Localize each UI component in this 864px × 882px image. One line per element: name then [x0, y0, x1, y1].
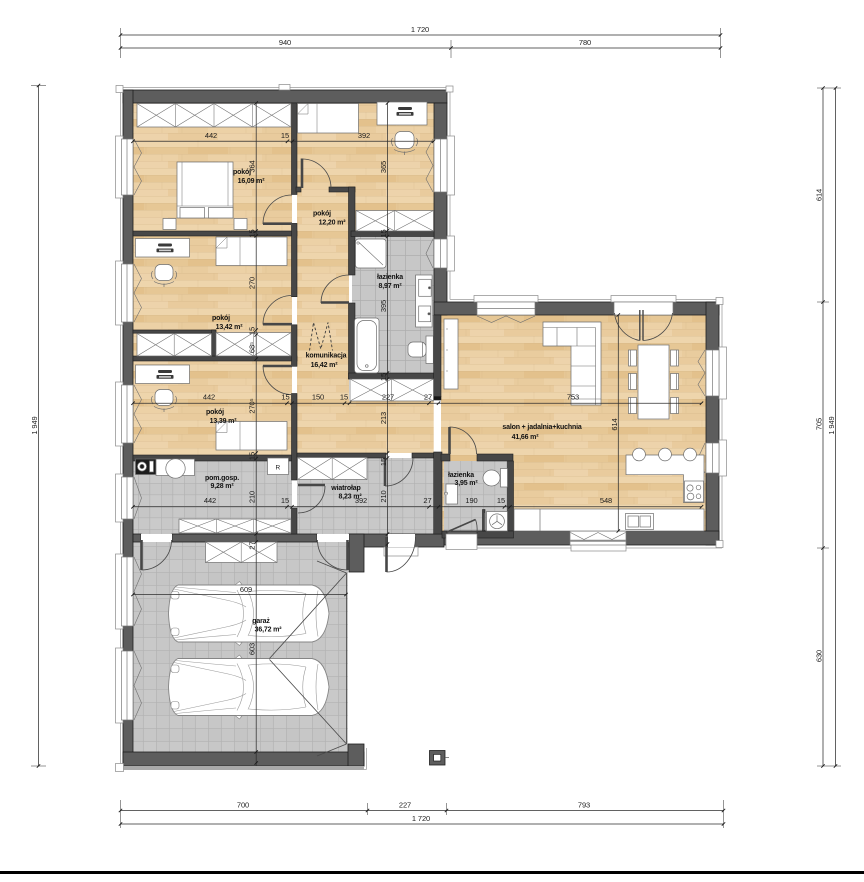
svg-text:27: 27	[248, 541, 257, 549]
svg-text:27: 27	[423, 496, 431, 505]
svg-text:213: 213	[379, 412, 388, 424]
svg-text:15: 15	[379, 373, 388, 381]
svg-text:garaż: garaż	[252, 618, 270, 625]
svg-text:41,66 m²: 41,66 m²	[512, 434, 540, 441]
svg-text:pokój: pokój	[233, 169, 251, 176]
svg-text:pokój: pokój	[313, 211, 331, 218]
svg-text:3,95 m²: 3,95 m²	[454, 480, 478, 487]
svg-text:442: 442	[203, 393, 215, 402]
svg-text:609: 609	[240, 585, 252, 594]
svg-text:15: 15	[281, 131, 289, 140]
svg-text:1 720: 1 720	[412, 814, 430, 823]
svg-text:9,28 m²: 9,28 m²	[210, 483, 234, 490]
svg-text:15: 15	[379, 229, 388, 237]
svg-text:13,42 m²: 13,42 m²	[216, 324, 244, 331]
svg-text:365: 365	[379, 161, 388, 173]
svg-text:1 949: 1 949	[30, 416, 39, 434]
svg-text:270: 270	[248, 277, 257, 289]
svg-text:227: 227	[382, 393, 394, 402]
svg-text:komunikacja: komunikacja	[306, 353, 347, 360]
svg-text:łazienka: łazienka	[377, 274, 403, 281]
svg-text:614: 614	[610, 418, 619, 430]
svg-text:780: 780	[579, 38, 591, 47]
svg-text:pom.gosp.: pom.gosp.	[205, 475, 239, 482]
svg-text:940: 940	[279, 38, 291, 47]
svg-text:R: R	[275, 465, 280, 472]
svg-text:salon + jadalnia+kuchnia: salon + jadalnia+kuchnia	[502, 424, 582, 431]
svg-text:395: 395	[379, 300, 388, 312]
svg-text:15: 15	[340, 393, 348, 402]
svg-text:210: 210	[379, 490, 388, 502]
svg-text:227: 227	[399, 801, 411, 810]
svg-text:548: 548	[600, 496, 612, 505]
svg-text:614: 614	[815, 189, 824, 201]
svg-text:łazienka: łazienka	[448, 472, 474, 479]
svg-text:12,20 m²: 12,20 m²	[319, 220, 347, 227]
svg-text:pokój: pokój	[206, 409, 224, 416]
svg-text:793: 793	[578, 801, 590, 810]
svg-text:190: 190	[465, 496, 477, 505]
svg-text:15: 15	[281, 393, 289, 402]
svg-text:16,42 m²: 16,42 m²	[311, 362, 339, 369]
svg-text:442: 442	[204, 496, 216, 505]
svg-text:210: 210	[248, 491, 257, 503]
svg-text:68⁵: 68⁵	[248, 342, 257, 353]
svg-text:13,39 m²: 13,39 m²	[210, 418, 238, 425]
svg-text:15: 15	[248, 327, 257, 335]
svg-text:15: 15	[281, 496, 289, 505]
svg-text:16,09 m²: 16,09 m²	[238, 178, 266, 185]
svg-text:1 720: 1 720	[411, 25, 429, 34]
svg-text:442: 442	[205, 131, 217, 140]
svg-text:wiatrołap: wiatrołap	[330, 485, 360, 492]
svg-text:270⁵: 270⁵	[248, 398, 257, 413]
svg-text:pokój: pokój	[212, 315, 230, 322]
svg-text:27: 27	[424, 393, 432, 402]
svg-text:700: 700	[237, 801, 249, 810]
svg-text:150: 150	[312, 393, 324, 402]
svg-text:630: 630	[815, 650, 824, 662]
svg-text:753: 753	[567, 393, 579, 402]
svg-text:8,97 m²: 8,97 m²	[378, 283, 402, 290]
svg-text:15: 15	[248, 229, 257, 237]
svg-text:705: 705	[815, 418, 824, 430]
svg-text:8,23 m²: 8,23 m²	[338, 494, 362, 501]
svg-text:36,72 m²: 36,72 m²	[255, 627, 283, 634]
svg-text:1 949: 1 949	[827, 416, 836, 434]
svg-text:603: 603	[248, 643, 257, 655]
svg-text:15: 15	[379, 458, 388, 466]
svg-text:15: 15	[497, 496, 505, 505]
svg-text:15: 15	[248, 452, 257, 460]
svg-text:392: 392	[358, 131, 370, 140]
